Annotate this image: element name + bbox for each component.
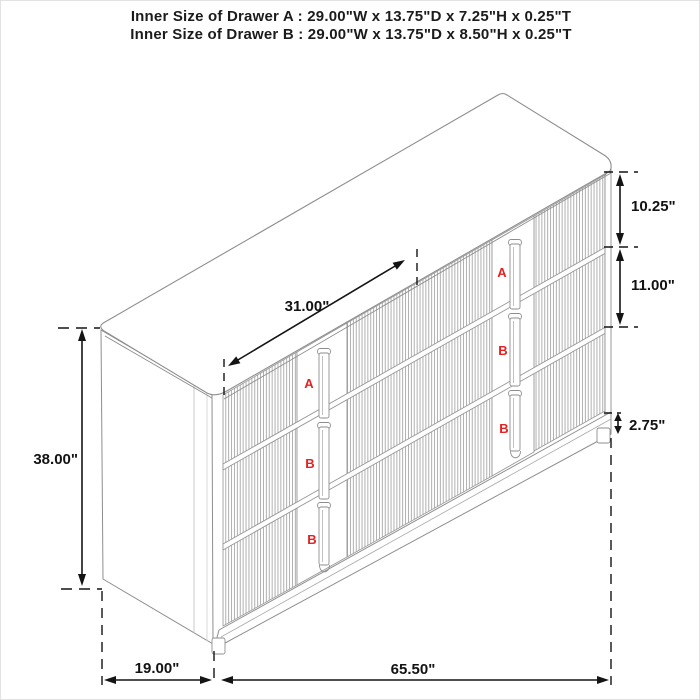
product-dimension-image: Inner Size of Drawer A : 29.00"W x 13.75…: [0, 0, 700, 700]
dim-drawer-a-height: 10.25": [604, 172, 676, 247]
drawer-label-left-b2: B: [307, 532, 316, 547]
dim-overall-height: 38.00": [33, 328, 102, 589]
dim-label-depth: 19.00": [135, 660, 180, 677]
left-drawer-handle: [318, 349, 331, 572]
dim-label-width: 65.50": [391, 661, 436, 678]
drawer-label-right-b2: B: [499, 421, 508, 436]
drawer-label-right-b1: B: [498, 343, 507, 358]
dim-depth: 19.00": [104, 660, 212, 684]
drawer-label-left-a: A: [304, 376, 314, 391]
drawer-label-left-b1: B: [305, 456, 314, 471]
dim-drawer-b-height: 11.00": [604, 249, 675, 327]
fluted-section-right: [534, 175, 605, 451]
dim-label-top-diagonal: 31.00": [285, 298, 330, 315]
right-foot: [597, 428, 610, 443]
dim-width: 65.50": [221, 661, 609, 684]
cabinet-drawing: A B B A B B: [101, 94, 611, 655]
right-drawer-handle: [509, 240, 522, 458]
sideboard-dimension-diagram: A B B A B B 31.00": [1, 1, 700, 700]
dim-base-height: 2.75": [604, 413, 665, 434]
dim-label-drawer-b-height: 11.00": [631, 277, 675, 294]
dim-label-base-height: 2.75": [629, 417, 665, 434]
right-stile: [605, 169, 611, 438]
drawer-label-right-a: A: [497, 265, 507, 280]
dim-label-overall-height: 38.00": [33, 451, 78, 468]
dim-label-drawer-a-height: 10.25": [631, 198, 676, 215]
